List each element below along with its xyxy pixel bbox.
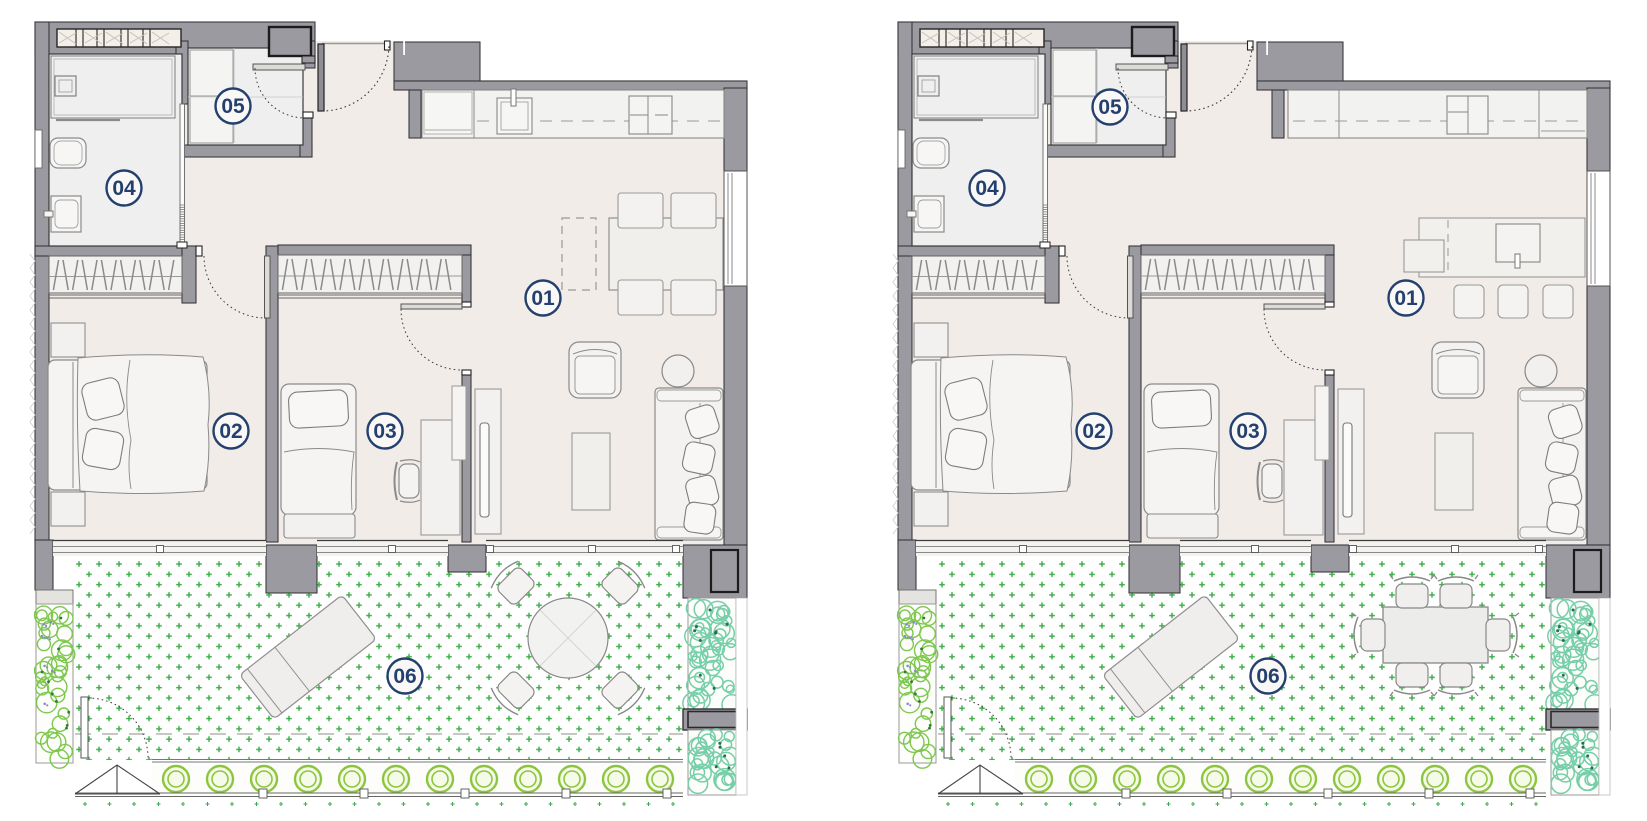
svg-text:03: 03 bbox=[1236, 420, 1259, 443]
svg-text:06: 06 bbox=[393, 665, 416, 688]
svg-text:02: 02 bbox=[1082, 420, 1105, 443]
svg-text:04: 04 bbox=[112, 177, 136, 200]
svg-text:05: 05 bbox=[221, 95, 245, 118]
svg-text:05: 05 bbox=[1098, 96, 1122, 119]
svg-text:06: 06 bbox=[1256, 665, 1279, 688]
svg-text:02: 02 bbox=[219, 420, 242, 443]
svg-text:01: 01 bbox=[1394, 287, 1418, 310]
svg-text:04: 04 bbox=[975, 177, 999, 200]
svg-text:01: 01 bbox=[531, 287, 555, 310]
svg-text:03: 03 bbox=[373, 420, 396, 443]
